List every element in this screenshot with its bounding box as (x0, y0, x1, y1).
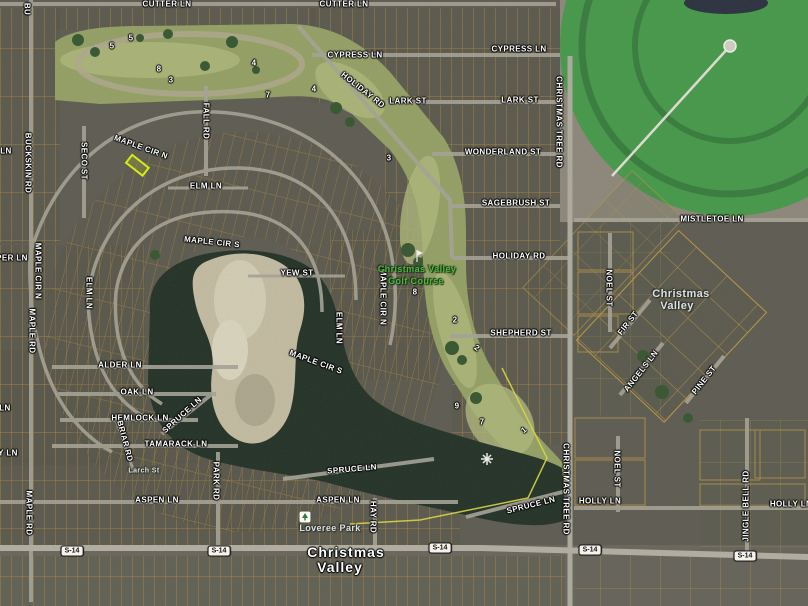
golf-hole-number: 3 (387, 154, 392, 163)
street-label-edge-partial-4: Y LN (0, 449, 18, 458)
town-label-bottom-line2: Valley (317, 559, 363, 575)
golf-hole-number: 2 (453, 316, 458, 325)
town-label-bottom-line1: Christmas (307, 544, 384, 560)
golf-hole-number: 8 (157, 65, 162, 74)
street-label-sagebrush: SAGEBRUSH ST (482, 199, 550, 208)
street-label-christmas-tree-n: CHRISTMAS TREE RD (555, 76, 564, 168)
golf-hole-number: 5 (110, 42, 115, 51)
street-label-cutter-1: CUTTER LN (143, 0, 192, 9)
street-label-noel-s: NOEL ST (613, 450, 622, 487)
street-label-cutter-2: CUTTER LN (320, 0, 369, 9)
street-label-holly-w: HOLLY LN (579, 497, 621, 506)
golf-hole-number: 7 (480, 418, 485, 427)
street-label-park-rd: PARK RD (212, 462, 221, 501)
street-label-yew: YEW ST (280, 269, 313, 278)
town-label-right-line1: Christmas (652, 288, 709, 300)
street-label-larch: Larch St (128, 468, 159, 475)
golf-hole-number: 8 (413, 288, 418, 297)
highway-badge-s14: S-14 (734, 551, 757, 562)
golf-hole-number: 3 (169, 76, 174, 85)
street-label-elm-e: ELM LN (335, 312, 344, 344)
street-label-hay-rd: HAY RD (369, 501, 378, 533)
highway-badge-s14: S-14 (61, 546, 84, 557)
golf-hole-number: 4 (312, 85, 317, 94)
highway-badge-s14: S-14 (579, 545, 602, 556)
golf-hole-number: 5 (129, 34, 134, 43)
street-label-aspen-w: ASPEN LN (135, 496, 179, 505)
street-label-edge-partial-2: PER LN (0, 254, 28, 263)
street-label-edge-partial-3: LN (0, 404, 11, 413)
street-label-maple-rd-n: MAPLE RD (28, 309, 37, 354)
street-label-elm-top: ELM LN (190, 182, 222, 191)
street-label-maple-rd-s: MAPLE RD (25, 491, 34, 536)
golf-hole-number: 9 (455, 402, 460, 411)
street-label-noel-n: NOEL ST (605, 269, 614, 306)
street-label-buckskin-partial: BU (23, 3, 32, 15)
highway-badge-s14: S-14 (429, 543, 452, 554)
street-label-fall-rd: FALL RD (202, 103, 211, 139)
street-label-maple-cir-n-w: MAPLE CIR N (34, 243, 43, 299)
street-label-maple-cir-n-e: MAPLE CIR N (379, 269, 388, 325)
street-label-cypress-1: CYPRESS LN (327, 51, 382, 60)
street-label-mistletoe: MISTLETOE LN (680, 215, 743, 224)
golf-hole-number: 4 (252, 59, 257, 68)
street-label-edge-partial-1: LN (0, 147, 11, 156)
street-label-holiday-e: HOLIDAY RD (493, 252, 546, 261)
street-label-seco: SECO ST (80, 142, 89, 180)
street-label-tamarack: TAMARACK LN (145, 440, 208, 449)
town-label-right-line2: Valley (660, 300, 694, 312)
street-label-lark-2: LARK ST (501, 96, 538, 105)
street-label-alder: ALDER LN (98, 361, 142, 370)
golf-hole-number: 7 (266, 91, 271, 100)
park-tree-icon (300, 512, 311, 523)
street-label-aspen-e: ASPEN LN (316, 496, 360, 505)
street-label-oak: OAK LN (120, 388, 153, 397)
street-label-wonderland: WONDERLAND ST (465, 148, 541, 157)
golf-course-label-line2: Golf Course (388, 276, 444, 286)
street-label-elm-w: ELM LN (85, 277, 94, 309)
street-label-christmas-tree-s: CHRISTMAS TREE RD (562, 443, 571, 535)
street-label-lark-1: LARK ST (389, 97, 426, 106)
satellite-map-canvas[interactable]: CUTTER LN CUTTER LN CYPRESS LN CYPRESS L… (0, 0, 808, 606)
street-label-holly-e: HOLLY LN (770, 500, 808, 509)
golf-course-label-line1: Christmas Valley (378, 264, 456, 274)
street-label-jingle-bell: JINGLE BELL RD (742, 470, 751, 541)
park-label: Loveree Park (299, 523, 360, 533)
highway-badge-s14: S-14 (208, 546, 231, 557)
street-label-cypress-2: CYPRESS LN (491, 45, 546, 54)
street-label-buckskin: BUCKSKIN RD (24, 133, 33, 193)
street-label-shepherd: SHEPHERD ST (490, 329, 551, 338)
